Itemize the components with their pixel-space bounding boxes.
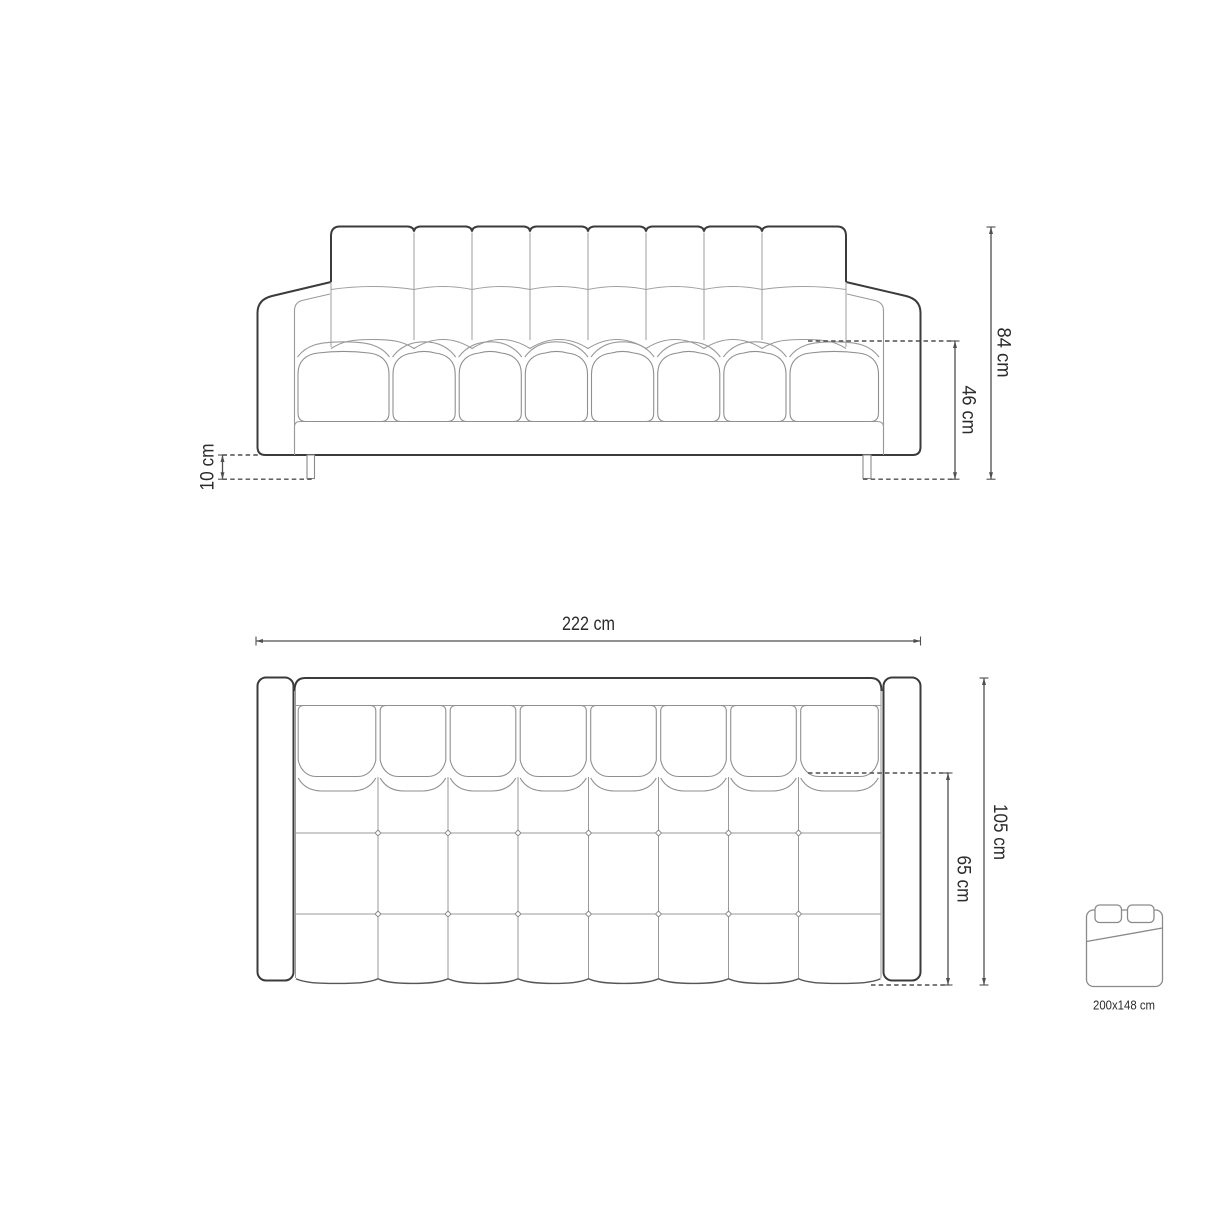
svg-text:84 cm: 84 cm <box>993 328 1014 378</box>
svg-text:46 cm: 46 cm <box>958 386 979 435</box>
svg-text:222 cm: 222 cm <box>562 614 615 635</box>
svg-text:105 cm: 105 cm <box>989 804 1010 860</box>
svg-text:200x148 cm: 200x148 cm <box>1093 999 1155 1013</box>
svg-text:10 cm: 10 cm <box>198 444 219 491</box>
svg-text:65 cm: 65 cm <box>953 856 974 903</box>
